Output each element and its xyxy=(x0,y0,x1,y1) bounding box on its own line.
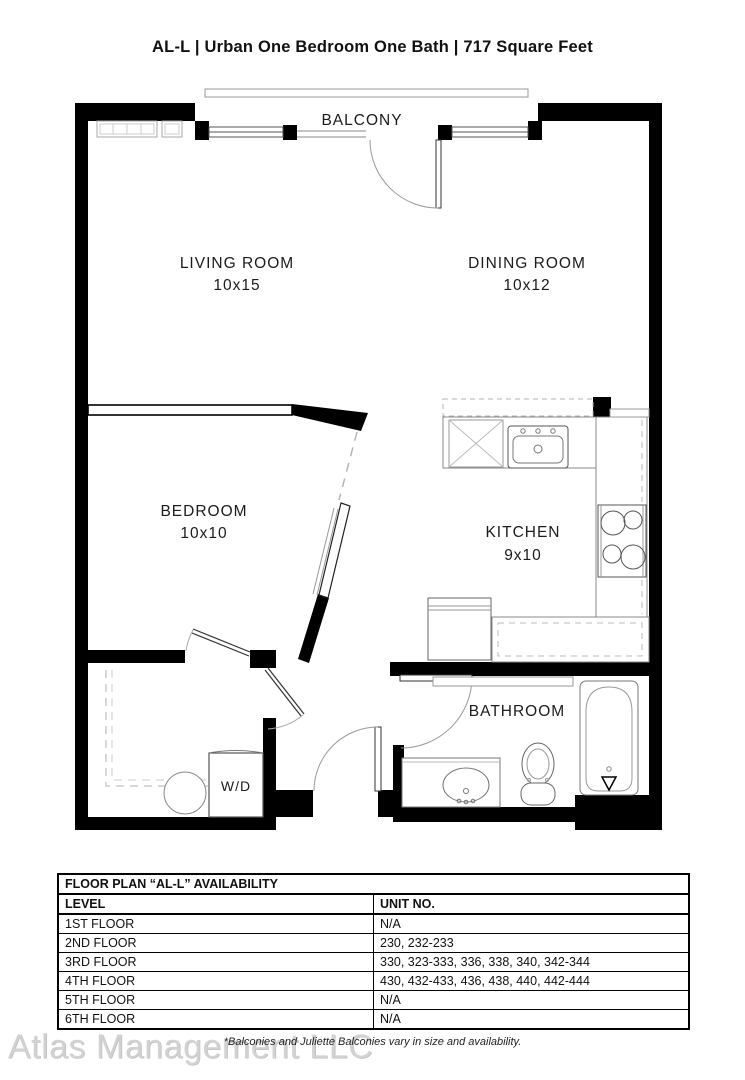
kitchen-sink-fixture xyxy=(508,426,568,468)
table-title-row: FLOOR PLAN “AL-L” AVAILABILITY xyxy=(58,874,689,894)
stove-fixture xyxy=(598,505,646,577)
col-header-level: LEVEL xyxy=(58,894,374,914)
units-cell: N/A xyxy=(374,991,690,1010)
refrigerator-fixture xyxy=(428,598,491,660)
table-row: 4TH FLOOR 430, 432-433, 436, 438, 440, 4… xyxy=(58,972,689,991)
level-cell: 4TH FLOOR xyxy=(58,972,374,991)
laundry-label: W/D xyxy=(221,778,251,794)
table-title: FLOOR PLAN “AL-L” AVAILABILITY xyxy=(58,874,689,894)
col-header-unit-no: UNIT NO. xyxy=(374,894,690,914)
entry-door xyxy=(314,727,381,791)
kitchen-label: KITCHEN xyxy=(485,524,560,541)
bedroom-door xyxy=(186,629,250,656)
balcony-label: BALCONY xyxy=(321,112,402,129)
water-heater-fixture xyxy=(164,772,206,814)
level-cell: 3RD FLOOR xyxy=(58,953,374,972)
kitchen-dims: 9x10 xyxy=(504,547,542,564)
vanity-sink-fixture xyxy=(402,758,500,807)
level-cell: 1ST FLOOR xyxy=(58,914,374,934)
table-row: 3RD FLOOR 330, 323-333, 336, 338, 340, 3… xyxy=(58,953,689,972)
table-row: 6TH FLOOR N/A xyxy=(58,1010,689,1030)
dining-room-dims: 10x12 xyxy=(503,277,550,294)
bathroom-shelf xyxy=(433,677,573,686)
units-cell: 430, 432-433, 436, 438, 440, 442-444 xyxy=(374,972,690,991)
table-row: 2ND FLOOR 230, 232-233 xyxy=(58,934,689,953)
balcony-door xyxy=(370,140,441,208)
living-bedroom-partition xyxy=(88,405,292,415)
toilet-fixture xyxy=(521,743,555,805)
bedroom-label: BEDROOM xyxy=(160,503,247,520)
balcony-slab xyxy=(205,89,528,97)
bathtub-fixture xyxy=(580,681,638,795)
level-cell: 6TH FLOOR xyxy=(58,1010,374,1030)
living-room-dims: 10x15 xyxy=(213,277,260,294)
baseboard-heater-fixture xyxy=(97,121,182,137)
units-cell: N/A xyxy=(374,1010,690,1030)
units-cell: 230, 232-233 xyxy=(374,934,690,953)
level-cell: 2ND FLOOR xyxy=(58,934,374,953)
table-row: 1ST FLOOR N/A xyxy=(58,914,689,934)
units-cell: N/A xyxy=(374,914,690,934)
bathroom-label: BATHROOM xyxy=(469,703,565,720)
units-cell: 330, 323-333, 336, 338, 340, 342-344 xyxy=(374,953,690,972)
floor-plan-flyer: AL-L | Urban One Bedroom One Bath | 717 … xyxy=(0,0,745,1080)
washer-dryer-fixture: W/D xyxy=(209,751,263,818)
page-title: AL-L | Urban One Bedroom One Bath | 717 … xyxy=(0,38,745,57)
table-row: 5TH FLOOR N/A xyxy=(58,991,689,1010)
bedroom-dims: 10x10 xyxy=(180,525,227,542)
dining-room-label: DINING ROOM xyxy=(468,255,586,272)
level-cell: 5TH FLOOR xyxy=(58,991,374,1010)
table-header-row: LEVEL UNIT NO. xyxy=(58,894,689,914)
availability-table: FLOOR PLAN “AL-L” AVAILABILITY LEVEL UNI… xyxy=(57,873,690,1030)
floor-plan-drawing: W/D BALCONY xyxy=(0,85,745,845)
living-room-label: LIVING ROOM xyxy=(180,255,294,272)
sliding-door xyxy=(313,432,357,598)
footnote: *Balconies and Juliette Balconies vary i… xyxy=(0,1036,745,1048)
